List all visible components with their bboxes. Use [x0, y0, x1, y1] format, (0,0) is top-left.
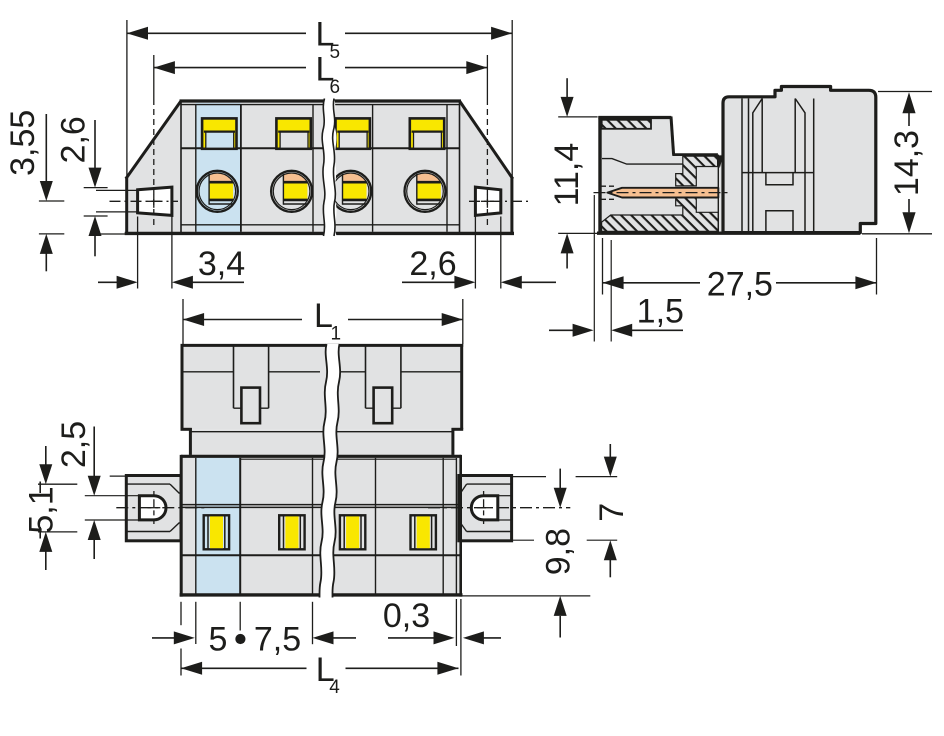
svg-text:1,5: 1,5 [637, 293, 684, 331]
svg-text:14,3: 14,3 [888, 130, 926, 196]
svg-text:4: 4 [329, 677, 340, 698]
svg-text:3,55: 3,55 [4, 110, 42, 176]
svg-text:5,1: 5,1 [23, 486, 61, 533]
svg-text:9,8: 9,8 [540, 528, 578, 575]
svg-text:7: 7 [593, 503, 631, 522]
svg-text:1: 1 [331, 323, 342, 344]
svg-text:7,5: 7,5 [254, 620, 301, 658]
svg-text:6: 6 [330, 77, 341, 98]
svg-text:11,4: 11,4 [548, 143, 586, 207]
svg-text:0,3: 0,3 [383, 597, 430, 635]
svg-text:5: 5 [209, 620, 228, 658]
svg-text:2,5: 2,5 [55, 421, 93, 468]
svg-text:2,6: 2,6 [55, 116, 93, 163]
svg-text:2,6: 2,6 [409, 245, 456, 283]
svg-text:3,4: 3,4 [198, 245, 245, 283]
svg-text:27,5: 27,5 [707, 266, 773, 304]
